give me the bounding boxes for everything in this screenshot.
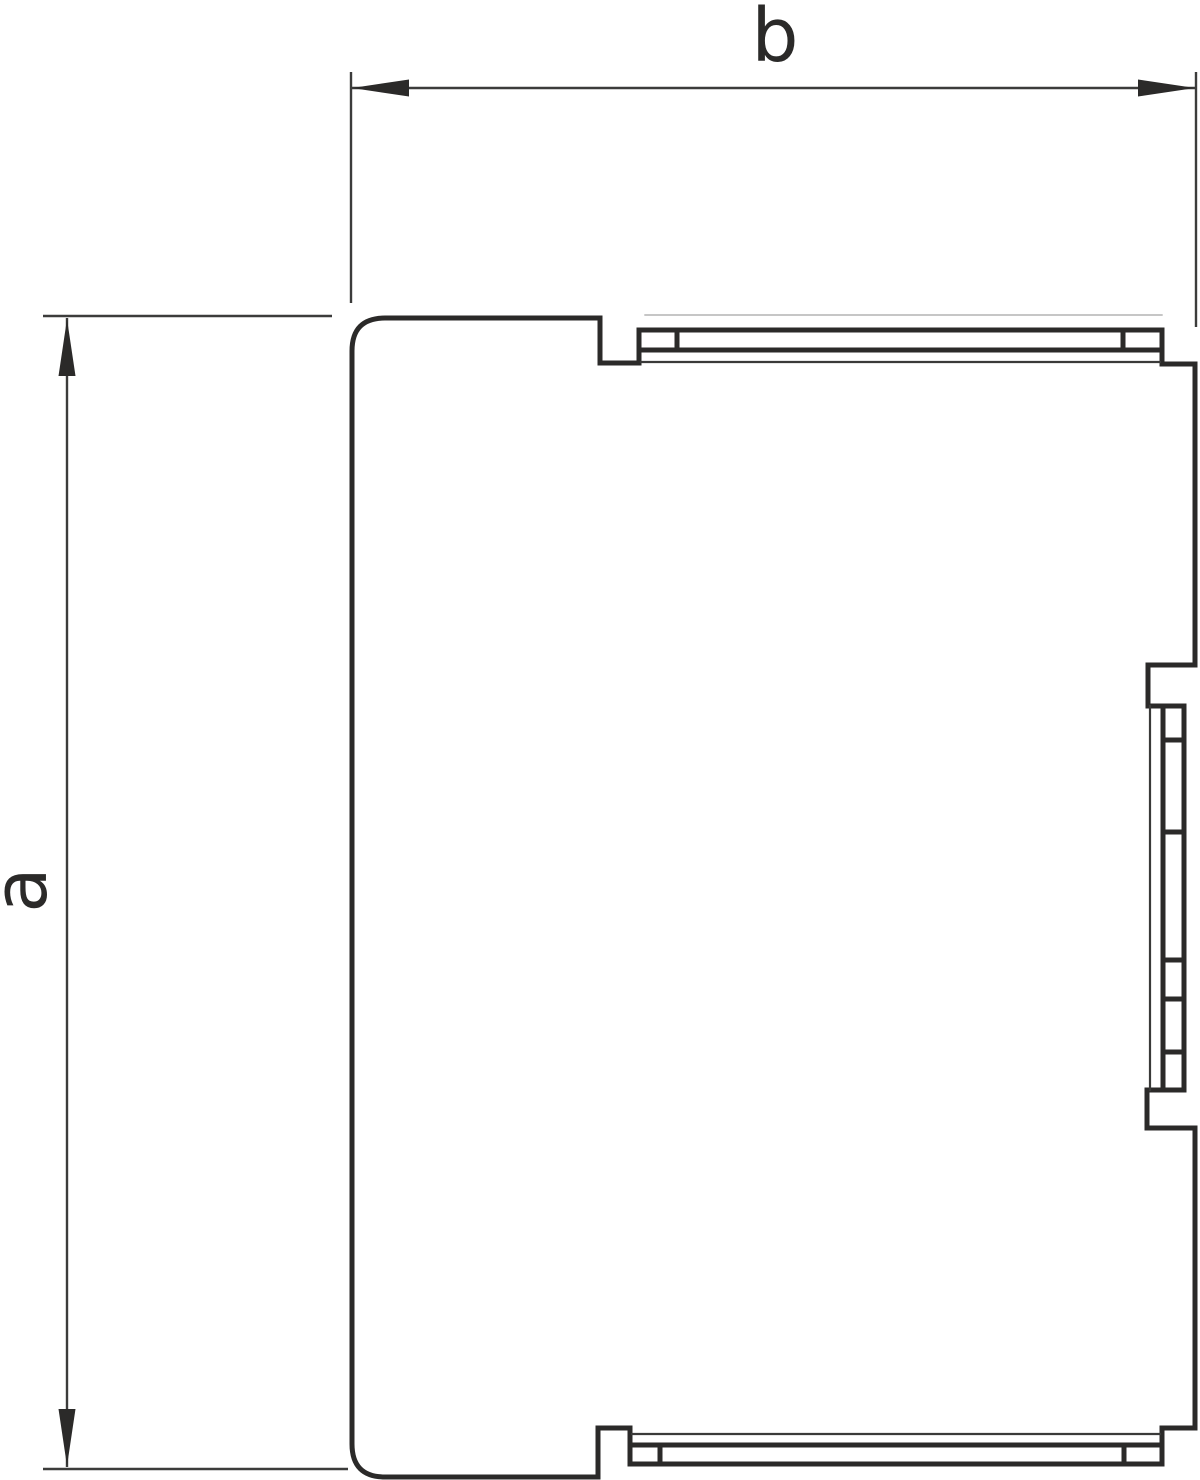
technical-drawing: b a bbox=[0, 0, 1200, 1480]
top-flange-detail bbox=[640, 330, 1162, 350]
dim-b-arrow-left bbox=[352, 80, 409, 97]
dim-a-arrow-up bbox=[59, 319, 76, 376]
width-dimension-label: b bbox=[752, 0, 799, 79]
dim-a-arrow-down bbox=[59, 1409, 76, 1466]
bottom-flange-detail bbox=[630, 1445, 1162, 1464]
dimension-b bbox=[351, 72, 1196, 327]
dim-b-arrow-right bbox=[1138, 80, 1195, 97]
height-dimension-label: a bbox=[0, 867, 64, 912]
part-view bbox=[352, 315, 1195, 1477]
drawing-canvas: b a bbox=[0, 0, 1200, 1480]
dimension-a bbox=[43, 316, 348, 1469]
side-latch-rail-detail bbox=[1163, 706, 1184, 1090]
part-outline bbox=[352, 318, 1195, 1477]
thin-edges bbox=[632, 362, 1160, 1434]
